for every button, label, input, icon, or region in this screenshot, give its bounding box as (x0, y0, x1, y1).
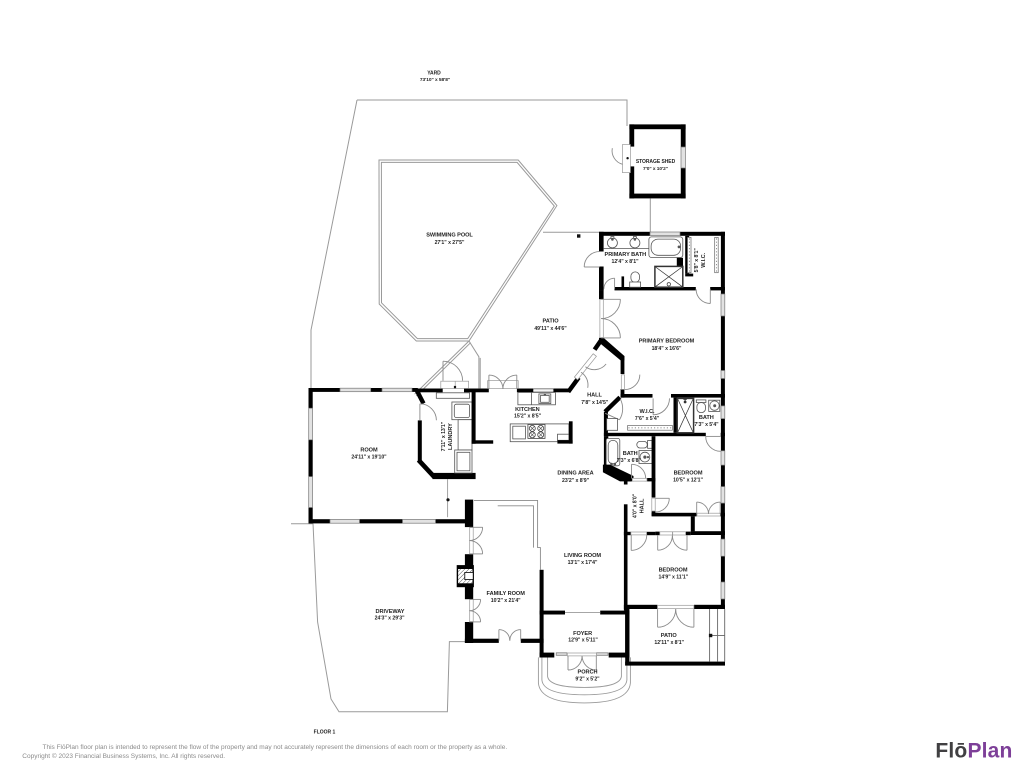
svg-text:23'2" x 8'9": 23'2" x 8'9" (562, 478, 590, 484)
svg-text:27'1" x 27'5": 27'1" x 27'5" (435, 240, 465, 246)
svg-text:BEDROOM: BEDROOM (659, 568, 688, 574)
svg-text:DRIVEWAY: DRIVEWAY (376, 609, 405, 615)
svg-text:HALL: HALL (587, 393, 602, 399)
svg-text:9'2" x 5'2": 9'2" x 5'2" (575, 676, 600, 682)
svg-text:LIVING ROOM: LIVING ROOM (564, 553, 601, 559)
svg-text:LAUNDRY: LAUNDRY (448, 423, 454, 450)
svg-text:FAMILY ROOM: FAMILY ROOM (487, 591, 526, 597)
svg-text:W.I.C.: W.I.C. (640, 409, 655, 415)
svg-text:HALL: HALL (640, 498, 646, 513)
svg-text:5'8" x 8'1": 5'8" x 8'1" (694, 248, 700, 273)
svg-text:FlōPlan: FlōPlan (935, 740, 1012, 763)
svg-text:7'8" x 14'5": 7'8" x 14'5" (581, 400, 609, 406)
svg-text:13'1" x 17'4": 13'1" x 17'4" (568, 560, 598, 566)
svg-text:This FlōPlan floor plan is int: This FlōPlan floor plan is intended to r… (43, 744, 508, 751)
svg-text:BEDROOM: BEDROOM (674, 471, 703, 477)
svg-text:24'3" x 29'3": 24'3" x 29'3" (375, 616, 405, 622)
svg-text:PATIO: PATIO (661, 633, 678, 639)
svg-text:Copyright © 2023 Financial Bus: Copyright © 2023 Financial Business Syst… (22, 752, 225, 760)
svg-text:10'2" x 21'4": 10'2" x 21'4" (491, 598, 521, 604)
svg-text:YARD: YARD (427, 71, 441, 77)
svg-text:DINING AREA: DINING AREA (557, 471, 593, 477)
svg-text:10'5" x 12'1": 10'5" x 12'1" (673, 478, 703, 484)
svg-text:PRIMARY BEDROOM: PRIMARY BEDROOM (639, 339, 695, 345)
svg-text:15'2" x 8'5": 15'2" x 8'5" (514, 413, 542, 419)
svg-text:FOYER: FOYER (573, 631, 592, 637)
svg-text:12'11" x 8'1": 12'11" x 8'1" (654, 640, 684, 646)
svg-text:SWIMMING POOL: SWIMMING POOL (426, 233, 473, 239)
svg-text:7'3" x 6'8": 7'3" x 6'8" (617, 458, 642, 464)
svg-text:BATH: BATH (623, 451, 638, 457)
svg-text:12'4" x 8'1": 12'4" x 8'1" (612, 259, 640, 265)
svg-text:24'11" x 19'10": 24'11" x 19'10" (351, 454, 387, 460)
svg-text:W.I.C.: W.I.C. (701, 252, 707, 267)
svg-text:73'10" x 58'8": 73'10" x 58'8" (420, 77, 450, 83)
svg-text:12'9" x 5'11": 12'9" x 5'11" (568, 638, 598, 644)
svg-text:7'0" x 10'2": 7'0" x 10'2" (643, 166, 668, 172)
svg-text:14'9" x 11'1": 14'9" x 11'1" (659, 574, 689, 580)
svg-text:STORAGE SHED: STORAGE SHED (636, 159, 676, 165)
svg-text:49'11" x 44'6": 49'11" x 44'6" (534, 326, 567, 332)
svg-text:PATIO: PATIO (542, 319, 559, 325)
svg-text:7'6" x 5'4": 7'6" x 5'4" (635, 416, 660, 422)
svg-text:FLOOR 1: FLOOR 1 (314, 729, 336, 735)
svg-text:18'4" x 16'6": 18'4" x 16'6" (652, 346, 682, 352)
svg-text:PRIMARY BATH: PRIMARY BATH (605, 252, 647, 258)
svg-text:PORCH: PORCH (578, 670, 598, 676)
svg-text:BATH: BATH (699, 415, 714, 421)
svg-text:7'3" x 5'4": 7'3" x 5'4" (694, 422, 719, 428)
svg-text:4'0" x 8'0": 4'0" x 8'0" (632, 493, 638, 518)
svg-text:KITCHEN: KITCHEN (515, 407, 540, 413)
svg-text:ROOM: ROOM (360, 448, 378, 454)
svg-text:7'11" x 13'1": 7'11" x 13'1" (441, 421, 447, 451)
